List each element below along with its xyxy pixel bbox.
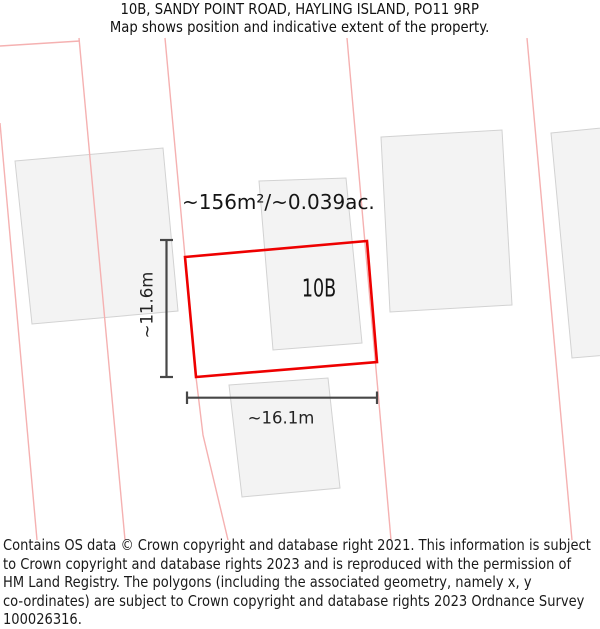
building-footprint (381, 130, 512, 312)
building-footprint (229, 378, 340, 497)
area-label: ~156m²/~0.039ac. (182, 190, 375, 214)
page-subtitle: Map shows position and indicative extent… (0, 19, 600, 37)
map-canvas (0, 0, 600, 625)
header: 10B, SANDY POINT ROAD, HAYLING ISLAND, P… (0, 1, 600, 36)
footer-line: to Crown copyright and database rights 2… (3, 555, 600, 574)
footer-line: Contains OS data © Crown copyright and d… (3, 536, 600, 555)
height-dimension-label: ~11.6m (138, 272, 157, 339)
footer-line: co-ordinates) are subject to Crown copyr… (3, 592, 600, 611)
copyright-footer: Contains OS data © Crown copyright and d… (3, 536, 600, 629)
footer-line: HM Land Registry. The polygons (includin… (3, 573, 600, 592)
width-dimension-label: ~16.1m (248, 409, 315, 428)
footer-line: 100026316. (3, 610, 600, 629)
page-title: 10B, SANDY POINT ROAD, HAYLING ISLAND, P… (0, 1, 600, 19)
property-number-label: 10B (302, 274, 336, 303)
